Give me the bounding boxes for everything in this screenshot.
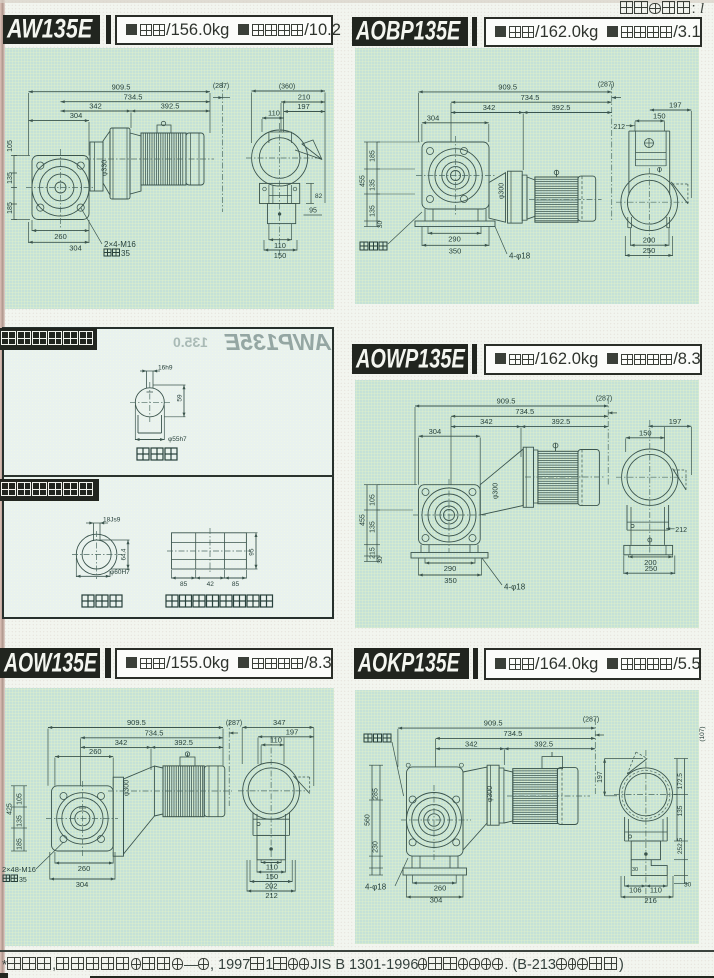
svg-text:250: 250 xyxy=(643,246,656,255)
svg-text:392.5: 392.5 xyxy=(161,102,180,111)
svg-text:φ60H7: φ60H7 xyxy=(110,569,130,576)
svg-text:200: 200 xyxy=(643,236,656,245)
svg-text:φ330: φ330 xyxy=(102,160,109,176)
svg-text:392.5: 392.5 xyxy=(174,738,193,747)
svg-text:290: 290 xyxy=(444,564,457,573)
svg-text:909.5: 909.5 xyxy=(497,397,516,406)
svg-text:95: 95 xyxy=(249,548,256,556)
svg-text:455: 455 xyxy=(360,514,367,526)
svg-text:106: 106 xyxy=(629,885,642,894)
svg-text:135: 135 xyxy=(370,179,377,191)
svg-text:135: 135 xyxy=(7,172,14,184)
svg-text:285: 285 xyxy=(372,788,379,800)
svg-text:95: 95 xyxy=(309,208,317,215)
svg-text:347: 347 xyxy=(273,718,286,727)
svg-text:φ300: φ300 xyxy=(487,786,494,802)
svg-text:197: 197 xyxy=(286,727,299,736)
svg-text:350: 350 xyxy=(449,246,462,255)
svg-text:150: 150 xyxy=(653,112,666,121)
svg-text:110: 110 xyxy=(266,863,278,872)
svg-text:909.5: 909.5 xyxy=(112,82,131,91)
svg-text:(287): (287) xyxy=(583,717,599,724)
svg-text:260: 260 xyxy=(78,864,91,873)
svg-text:φ300: φ300 xyxy=(124,780,131,796)
svg-text:342: 342 xyxy=(89,102,102,111)
svg-text:110: 110 xyxy=(274,241,286,250)
svg-text:(360): (360) xyxy=(279,84,295,91)
svg-text:135: 135 xyxy=(677,805,684,816)
svg-text:150: 150 xyxy=(266,872,279,881)
svg-text:290: 290 xyxy=(448,234,461,243)
svg-text:18Js9: 18Js9 xyxy=(103,517,121,524)
svg-text:30: 30 xyxy=(377,556,384,564)
svg-text:(287): (287) xyxy=(213,83,229,90)
svg-text:30: 30 xyxy=(684,882,692,889)
svg-text:135: 135 xyxy=(370,521,377,533)
svg-text:734.5: 734.5 xyxy=(504,729,523,738)
svg-text:110: 110 xyxy=(268,109,280,118)
svg-text:85: 85 xyxy=(232,581,240,588)
svg-text:105: 105 xyxy=(370,494,377,506)
svg-text:250: 250 xyxy=(645,564,658,573)
svg-text:260: 260 xyxy=(89,747,102,756)
svg-text:4-φ18: 4-φ18 xyxy=(509,252,531,261)
svg-text:215: 215 xyxy=(370,547,377,559)
svg-text:135: 135 xyxy=(370,205,377,217)
svg-text:392.5: 392.5 xyxy=(552,417,571,426)
svg-text:16h9: 16h9 xyxy=(158,365,173,372)
svg-text:304: 304 xyxy=(430,896,443,905)
svg-text:(107): (107) xyxy=(699,726,706,741)
svg-text:342: 342 xyxy=(115,738,128,747)
svg-text:197: 197 xyxy=(597,771,604,783)
svg-text:202: 202 xyxy=(265,882,278,891)
svg-text:φ300: φ300 xyxy=(492,483,499,499)
svg-text:216: 216 xyxy=(644,896,657,905)
svg-text:734.5: 734.5 xyxy=(521,93,540,102)
svg-text:(287): (287) xyxy=(598,82,614,89)
svg-text:35: 35 xyxy=(121,249,130,258)
svg-text:150: 150 xyxy=(639,428,652,437)
svg-text:2×4-M16: 2×4-M16 xyxy=(104,240,136,249)
svg-text:734.5: 734.5 xyxy=(124,92,143,101)
svg-text:185: 185 xyxy=(370,150,377,162)
svg-text:197: 197 xyxy=(669,417,682,426)
svg-text:252.5: 252.5 xyxy=(677,837,684,854)
svg-text:304: 304 xyxy=(70,111,83,120)
svg-text:260: 260 xyxy=(54,232,67,241)
svg-text:350: 350 xyxy=(444,576,457,585)
svg-text:30: 30 xyxy=(377,221,384,229)
svg-text:4-φ18: 4-φ18 xyxy=(504,582,526,591)
svg-text:172.5: 172.5 xyxy=(677,773,684,790)
svg-text:212: 212 xyxy=(675,527,687,534)
svg-text:(287): (287) xyxy=(596,396,612,403)
svg-text:85: 85 xyxy=(180,581,188,588)
svg-text:64.4: 64.4 xyxy=(122,548,128,560)
svg-text:42: 42 xyxy=(207,581,215,588)
svg-text:(287): (287) xyxy=(226,720,242,727)
svg-text:392.5: 392.5 xyxy=(534,739,553,748)
svg-text:304: 304 xyxy=(76,880,89,889)
svg-text:734.5: 734.5 xyxy=(145,728,164,737)
svg-text:210: 210 xyxy=(298,93,311,102)
svg-text:342: 342 xyxy=(465,739,478,748)
svg-text:425: 425 xyxy=(7,803,14,815)
svg-text:260: 260 xyxy=(434,884,447,893)
svg-text:185: 185 xyxy=(17,838,24,850)
svg-text:455: 455 xyxy=(360,175,367,187)
svg-text:135: 135 xyxy=(17,815,24,827)
svg-text:304: 304 xyxy=(427,113,440,122)
svg-text:105: 105 xyxy=(17,793,24,805)
svg-text:734.5: 734.5 xyxy=(515,407,534,416)
svg-text:2×48-M16: 2×48-M16 xyxy=(2,865,36,874)
svg-text:105: 105 xyxy=(7,140,14,152)
svg-text:304: 304 xyxy=(429,427,442,436)
svg-text:φ300: φ300 xyxy=(499,183,506,199)
svg-text:110: 110 xyxy=(650,885,662,894)
svg-text:110: 110 xyxy=(270,736,282,745)
svg-text:342: 342 xyxy=(480,417,493,426)
svg-text:185: 185 xyxy=(7,202,14,214)
svg-text:φ55h7: φ55h7 xyxy=(168,436,187,443)
svg-text:197: 197 xyxy=(669,101,682,110)
svg-text:230: 230 xyxy=(372,841,379,853)
svg-text:82: 82 xyxy=(315,193,323,200)
svg-text:197: 197 xyxy=(297,102,310,111)
svg-text:909.5: 909.5 xyxy=(484,719,503,728)
svg-text:304: 304 xyxy=(69,244,82,253)
svg-text:392.5: 392.5 xyxy=(552,103,571,112)
svg-text:35: 35 xyxy=(19,877,27,884)
svg-text:59: 59 xyxy=(177,394,184,402)
svg-text:150: 150 xyxy=(274,251,287,260)
svg-text:30: 30 xyxy=(632,867,638,873)
svg-text:212: 212 xyxy=(265,891,278,900)
svg-text:4-φ18: 4-φ18 xyxy=(365,883,387,892)
svg-text:560: 560 xyxy=(365,814,372,826)
svg-text:909.5: 909.5 xyxy=(127,718,146,727)
svg-text:342: 342 xyxy=(483,103,496,112)
svg-text:909.5: 909.5 xyxy=(498,83,517,92)
svg-text:212: 212 xyxy=(613,124,625,131)
